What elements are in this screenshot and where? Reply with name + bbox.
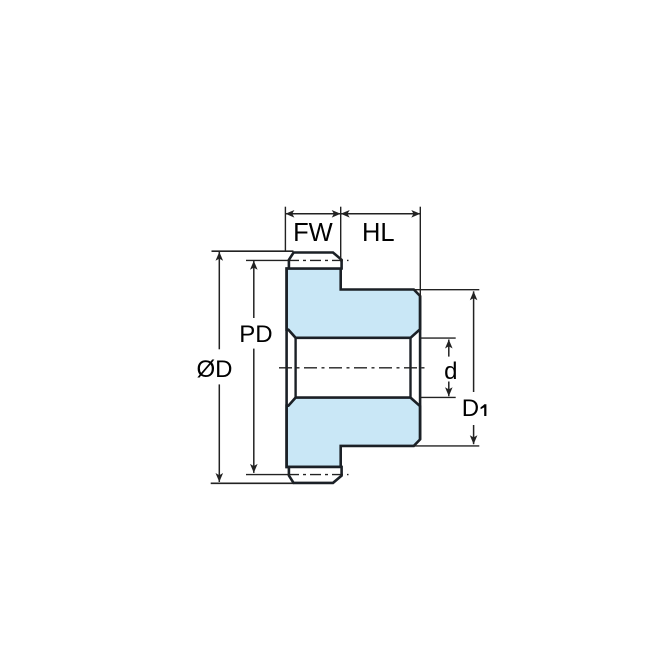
svg-text:d: d (444, 358, 457, 385)
svg-text:HL: HL (362, 219, 395, 247)
svg-text:D: D (462, 395, 479, 422)
svg-text:ØD: ØD (197, 356, 233, 383)
svg-text:FW: FW (293, 219, 333, 247)
svg-text:PD: PD (239, 321, 272, 348)
